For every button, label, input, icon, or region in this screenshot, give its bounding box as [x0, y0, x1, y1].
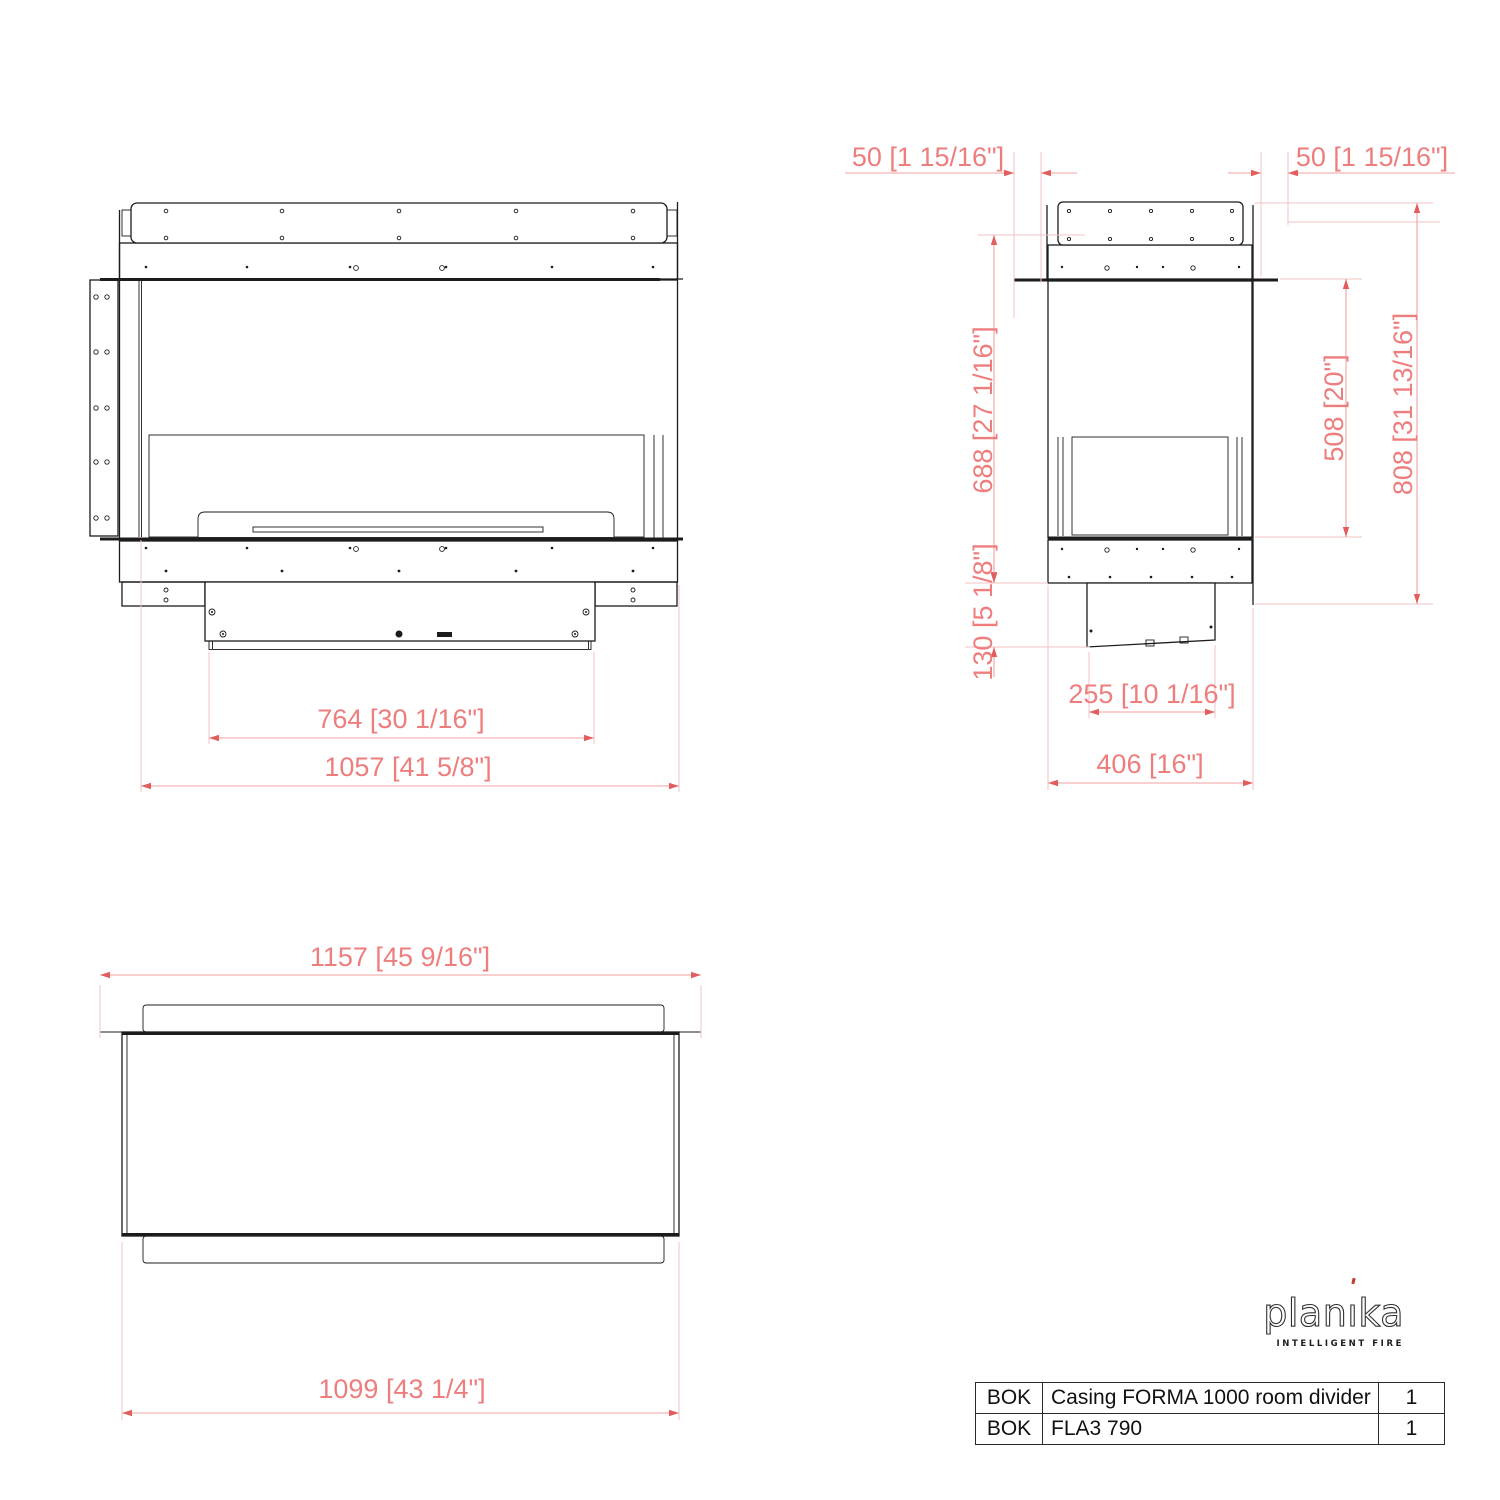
- part-qty: 1: [1378, 1414, 1444, 1444]
- dim-front-inner-width: 764 [30 1/16"]: [317, 704, 484, 734]
- front-bottom-band-holes: [145, 547, 655, 573]
- part-code: BOK: [976, 1414, 1042, 1444]
- front-view: [90, 202, 683, 650]
- part-code: BOK: [976, 1383, 1042, 1413]
- part-qty: 1: [1378, 1383, 1444, 1413]
- side-view: [1014, 202, 1278, 647]
- technical-drawing: 764 [30 1/16"] 1057 [41 5/8"] 50 [1 15/1…: [0, 0, 1500, 1500]
- brand-tagline: INTELLIGENT FIRE: [1250, 1339, 1404, 1349]
- table-row: BOK FLA3 790 1: [976, 1413, 1444, 1444]
- dim-top-casing-width: 1099 [43 1/4"]: [318, 1374, 485, 1404]
- dim-front-outer-width: 1057 [41 5/8"]: [324, 752, 491, 782]
- front-strip-holes: [94, 295, 109, 520]
- top-view-dimensions: 1157 [45 9/16"] 1099 [43 1/4"]: [100, 942, 701, 1420]
- side-mounting-plate: [1058, 202, 1243, 245]
- dim-side-total-depth: 406 [16"]: [1096, 749, 1203, 779]
- dim-side-box-height: 130 [5 1/8"]: [968, 543, 998, 680]
- dim-side-opening-height: 508 [20"]: [1319, 354, 1349, 461]
- dim-side-height-mid: 688 [27 1/16"]: [968, 326, 998, 493]
- dim-side-offset-right: 50 [1 15/16"]: [1296, 142, 1448, 172]
- brand-logo: planıka INTELLIGENT FIRE: [1250, 1290, 1404, 1349]
- part-description: Casing FORMA 1000 room divider: [1042, 1383, 1378, 1413]
- dim-side-offset-left: 50 [1 15/16"]: [852, 142, 1004, 172]
- dim-top-glass-width: 1157 [45 9/16"]: [310, 942, 490, 972]
- side-bottom-band-holes: [1061, 548, 1240, 579]
- side-control-box: [1087, 583, 1215, 647]
- brand-wordmark: planıka: [1250, 1290, 1404, 1338]
- top-view: [100, 1005, 701, 1263]
- table-row: BOK Casing FORMA 1000 room divider 1: [976, 1383, 1444, 1413]
- front-view-dimensions: 764 [30 1/16"] 1057 [41 5/8"]: [141, 540, 679, 792]
- part-description: FLA3 790: [1042, 1414, 1378, 1444]
- drawing-sheet: { "views": { "front": { "dims": { "inner…: [0, 0, 1500, 1500]
- dim-side-total-height: 808 [31 13/16"]: [1388, 313, 1418, 495]
- parts-table: BOK Casing FORMA 1000 room divider 1 BOK…: [975, 1382, 1445, 1445]
- burner-slot: [253, 527, 543, 532]
- dim-side-box-depth: 255 [10 1/16"]: [1068, 679, 1235, 709]
